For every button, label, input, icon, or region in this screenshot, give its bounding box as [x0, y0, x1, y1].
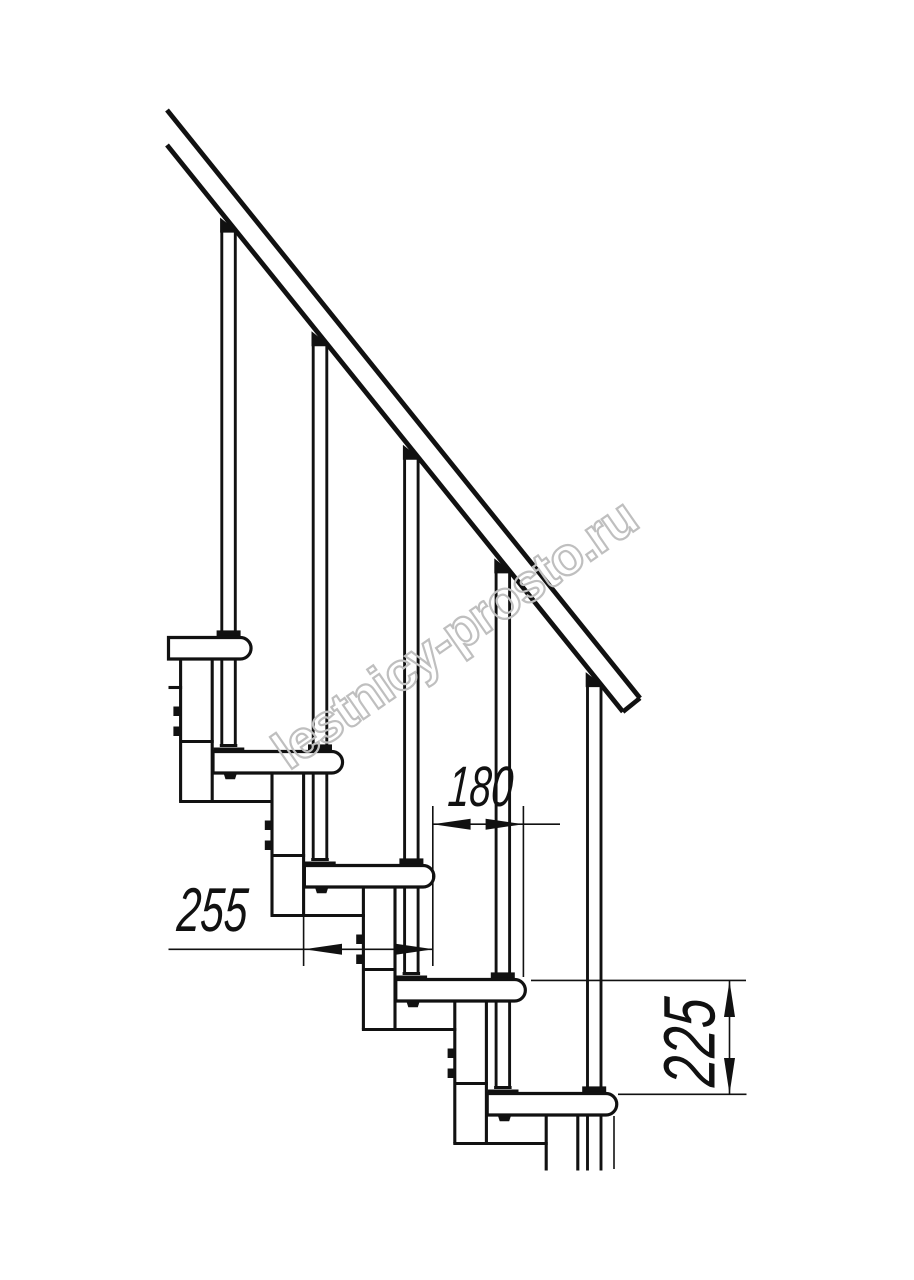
svg-text:180: 180 [446, 756, 515, 819]
svg-text:255: 255 [174, 876, 250, 945]
svg-text:225: 225 [648, 994, 730, 1089]
